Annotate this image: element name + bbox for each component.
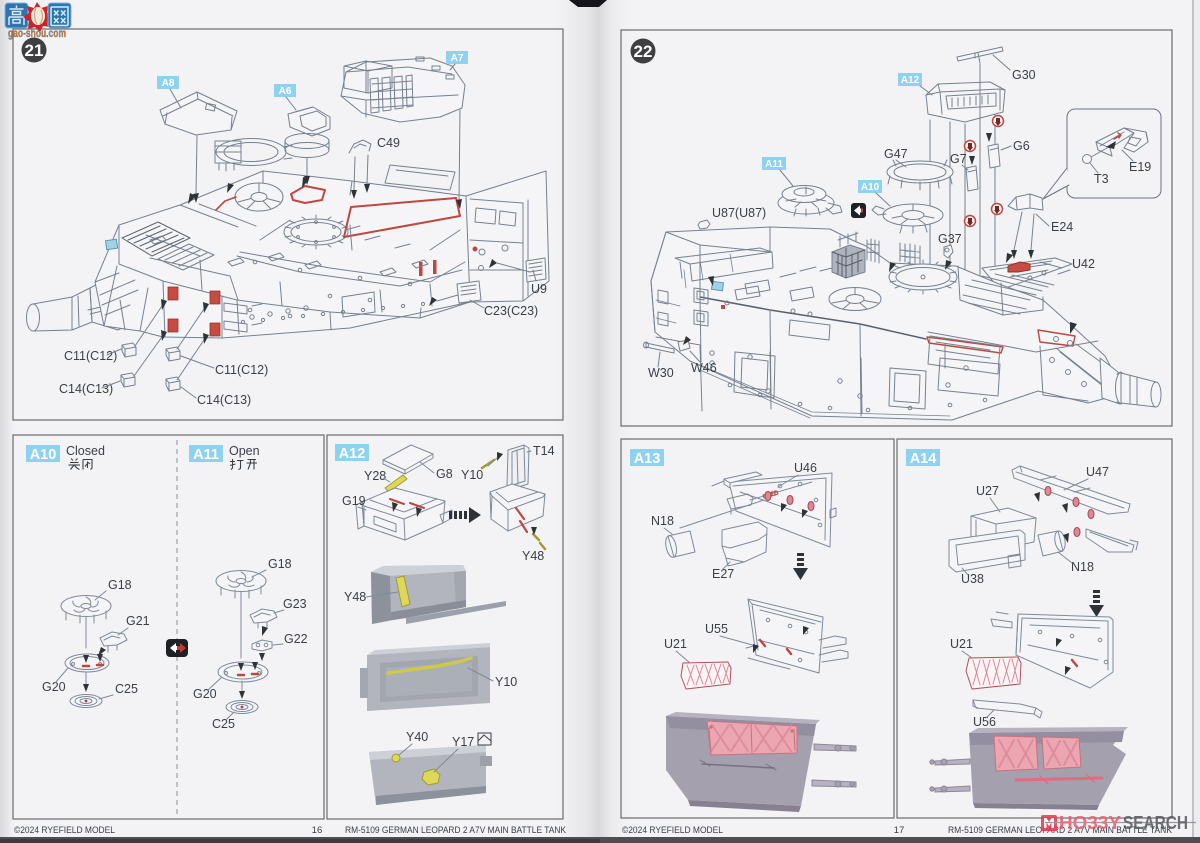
svg-text:C14(C13): C14(C13) — [59, 382, 113, 396]
svg-text:Y17: Y17 — [452, 735, 474, 749]
svg-text:A10: A10 — [861, 182, 880, 193]
svg-text:A7: A7 — [451, 53, 464, 64]
svg-text:C11(C12): C11(C12) — [64, 349, 117, 363]
svg-text:T14: T14 — [533, 444, 555, 458]
svg-text:U87(U87): U87(U87) — [712, 206, 766, 220]
svg-text:Closed: Closed — [66, 444, 105, 458]
svg-text:C23(C23): C23(C23) — [484, 304, 538, 318]
svg-text:G18: G18 — [108, 578, 132, 592]
svg-text:U55: U55 — [705, 622, 728, 636]
svg-text:C25: C25 — [212, 717, 235, 731]
svg-text:A10: A10 — [30, 447, 57, 463]
svg-text:Open: Open — [229, 444, 260, 458]
svg-text:G20: G20 — [42, 680, 66, 694]
svg-text:C14(C13): C14(C13) — [197, 393, 251, 407]
svg-text:U27: U27 — [976, 484, 999, 498]
svg-text:U9: U9 — [531, 282, 547, 296]
svg-text:U38: U38 — [961, 572, 984, 586]
svg-text:W46: W46 — [691, 361, 717, 375]
svg-text:gao-shou.com: gao-shou.com — [8, 28, 66, 40]
svg-text:G20: G20 — [193, 687, 217, 701]
svg-text:©2024 RYEFIELD MODEL: ©2024 RYEFIELD MODEL — [14, 825, 116, 836]
svg-text:W30: W30 — [648, 366, 674, 380]
svg-text:U42: U42 — [1072, 257, 1095, 271]
svg-text:G8: G8 — [436, 467, 453, 481]
svg-text:G21: G21 — [126, 614, 150, 628]
svg-text:G47: G47 — [884, 147, 908, 161]
svg-text:G30: G30 — [1012, 68, 1036, 82]
svg-text:A12: A12 — [339, 446, 366, 462]
svg-text:A13: A13 — [634, 451, 661, 467]
svg-text:Y48: Y48 — [344, 590, 366, 604]
svg-text:C11(C12): C11(C12) — [215, 363, 268, 377]
svg-text:E19: E19 — [1129, 160, 1151, 174]
svg-text:A12: A12 — [901, 75, 920, 86]
svg-text:G7: G7 — [950, 152, 967, 166]
svg-text:U56: U56 — [973, 715, 996, 729]
svg-text:A6: A6 — [279, 86, 292, 97]
svg-text:A8: A8 — [162, 78, 175, 89]
svg-text:G23: G23 — [283, 597, 307, 611]
svg-text:A11: A11 — [765, 159, 783, 170]
svg-text:17: 17 — [894, 825, 905, 836]
svg-text:©2024 RYEFIELD MODEL: ©2024 RYEFIELD MODEL — [622, 825, 724, 836]
svg-text:U21: U21 — [664, 637, 687, 651]
svg-text:21: 21 — [25, 41, 44, 60]
svg-text:C49: C49 — [377, 136, 400, 150]
svg-text:G37: G37 — [938, 232, 962, 246]
svg-text:SEARCH: SEARCH — [1123, 812, 1188, 833]
svg-text:U46: U46 — [794, 461, 817, 475]
svg-text:G6: G6 — [1013, 139, 1030, 153]
svg-text:G18: G18 — [268, 557, 292, 571]
svg-text:G19: G19 — [342, 494, 366, 508]
svg-text:G22: G22 — [284, 632, 308, 646]
svg-text:A14: A14 — [910, 451, 937, 467]
svg-text:N18: N18 — [1071, 560, 1094, 574]
svg-text:16: 16 — [312, 825, 323, 836]
svg-text:Y28: Y28 — [364, 469, 386, 483]
svg-text:RM-5109 GERMAN LEOPARD 2 A7V: RM-5109 GERMAN LEOPARD 2 A7V MAIN BATTLE… — [345, 825, 567, 836]
svg-text:Y10: Y10 — [461, 468, 483, 482]
svg-text:N18: N18 — [651, 514, 674, 528]
svg-text:U47: U47 — [1086, 465, 1109, 479]
svg-text:Y10: Y10 — [495, 675, 517, 689]
svg-text:U21: U21 — [950, 637, 973, 651]
svg-text:E24: E24 — [1051, 220, 1073, 234]
svg-text:22: 22 — [634, 42, 653, 61]
svg-text:HO33Y: HO33Y — [1059, 812, 1122, 833]
svg-text:Y48: Y48 — [522, 549, 544, 563]
svg-text:Y40: Y40 — [406, 730, 428, 744]
svg-text:A11: A11 — [193, 447, 219, 463]
svg-text:C25: C25 — [115, 682, 138, 696]
svg-text:T3: T3 — [1094, 172, 1109, 186]
